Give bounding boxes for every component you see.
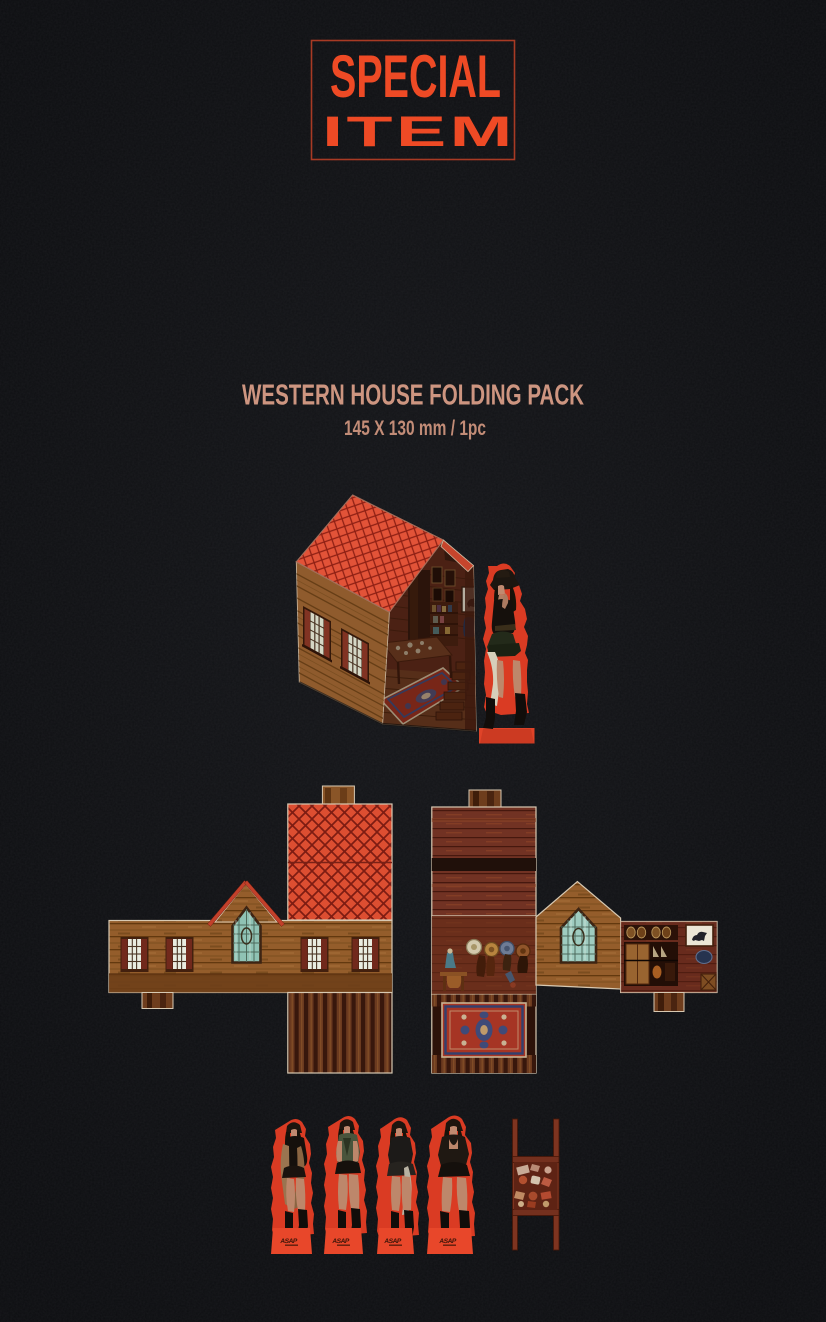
svg-text:SPECIAL: SPECIAL xyxy=(330,43,501,110)
svg-text:ITEM: ITEM xyxy=(322,107,516,155)
svg-text:ASAP: ASAP xyxy=(384,1238,403,1245)
svg-text:ASAP: ASAP xyxy=(439,1238,458,1245)
svg-text:WESTERN HOUSE FOLDING PACK: WESTERN HOUSE FOLDING PACK xyxy=(242,380,584,412)
svg-text:ASAP: ASAP xyxy=(332,1238,351,1245)
svg-text:ASAP: ASAP xyxy=(280,1238,299,1245)
svg-text:145 X 130 mm / 1pc: 145 X 130 mm / 1pc xyxy=(344,417,486,440)
